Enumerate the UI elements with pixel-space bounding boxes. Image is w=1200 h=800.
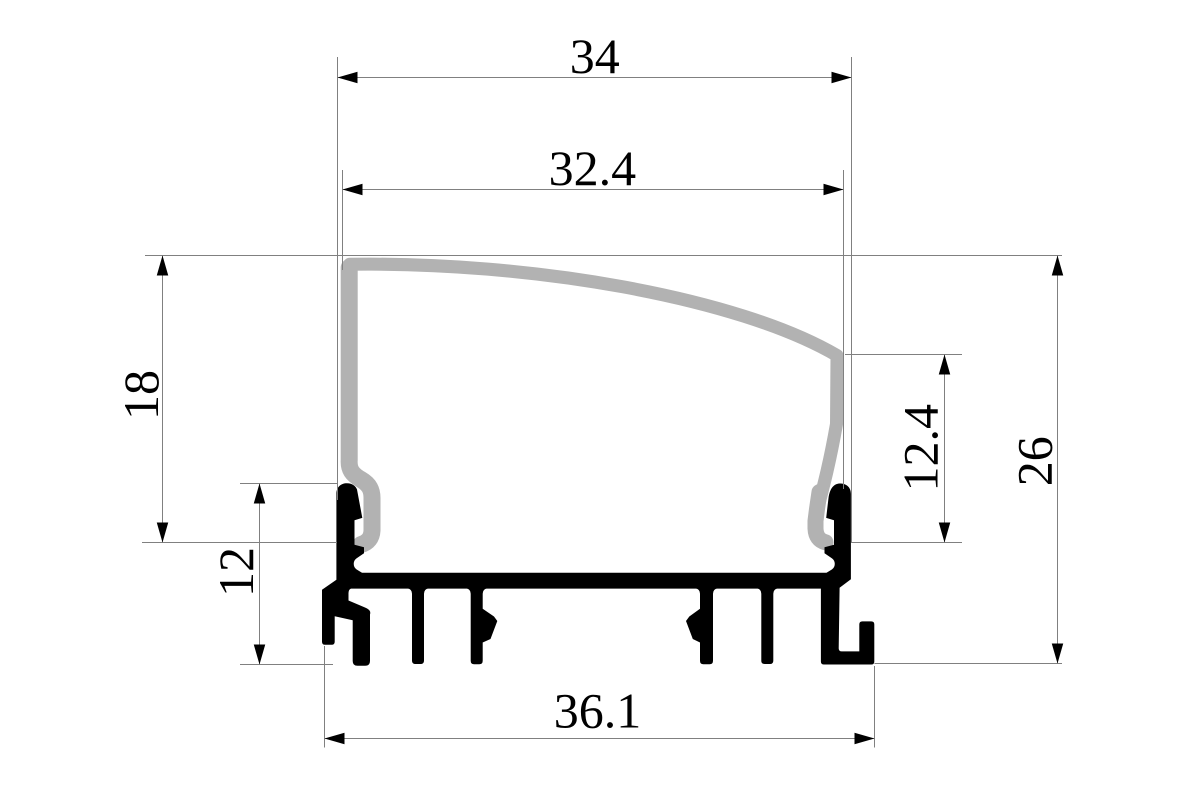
- svg-text:26: 26: [1007, 436, 1063, 486]
- svg-text:36.1: 36.1: [554, 683, 642, 739]
- svg-text:34: 34: [570, 28, 620, 84]
- svg-text:12: 12: [208, 547, 264, 597]
- svg-text:18: 18: [113, 370, 169, 420]
- svg-text:12.4: 12.4: [893, 404, 949, 492]
- svg-text:32.4: 32.4: [549, 140, 637, 196]
